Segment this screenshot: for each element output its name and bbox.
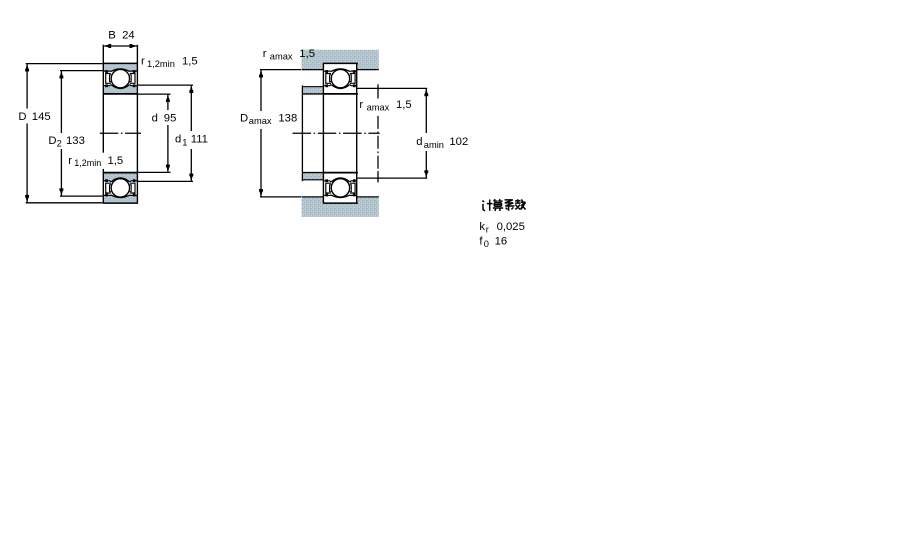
svg-text:133: 133 <box>66 135 85 147</box>
svg-text:r: r <box>359 99 363 111</box>
svg-text:0,025: 0,025 <box>497 221 525 233</box>
svg-text:138: 138 <box>278 113 297 125</box>
svg-text:d: d <box>175 134 181 146</box>
svg-text:D: D <box>18 111 26 123</box>
svg-text:D: D <box>240 113 248 125</box>
svg-text:1: 1 <box>182 138 187 148</box>
svg-text:d: d <box>416 136 422 148</box>
svg-text:r: r <box>263 48 267 60</box>
svg-text:D: D <box>48 135 56 147</box>
svg-text:1,5: 1,5 <box>299 48 315 60</box>
svg-text:95: 95 <box>164 113 177 125</box>
svg-text:0: 0 <box>484 239 489 249</box>
svg-text:amax: amax <box>367 102 390 112</box>
svg-text:amin: amin <box>424 140 444 150</box>
svg-text:1,5: 1,5 <box>396 99 412 111</box>
svg-text:r: r <box>141 56 145 68</box>
svg-text:16: 16 <box>495 235 508 247</box>
svg-text:B 24: B 24 <box>108 30 134 42</box>
svg-text:111: 111 <box>191 134 208 146</box>
svg-text:1,2min: 1,2min <box>74 158 101 168</box>
svg-text:r: r <box>486 224 489 234</box>
svg-text:1,5: 1,5 <box>182 56 198 68</box>
svg-text:145: 145 <box>32 111 51 123</box>
svg-text:1,2min: 1,2min <box>147 59 175 69</box>
svg-text:1,5: 1,5 <box>108 155 124 167</box>
svg-text:k: k <box>479 221 485 233</box>
svg-text:d: d <box>152 113 158 125</box>
svg-text:amax: amax <box>249 116 272 126</box>
svg-text:2: 2 <box>57 138 62 148</box>
svg-text:amax: amax <box>270 51 293 61</box>
svg-text:102: 102 <box>449 136 468 148</box>
svg-text:r: r <box>68 155 72 167</box>
